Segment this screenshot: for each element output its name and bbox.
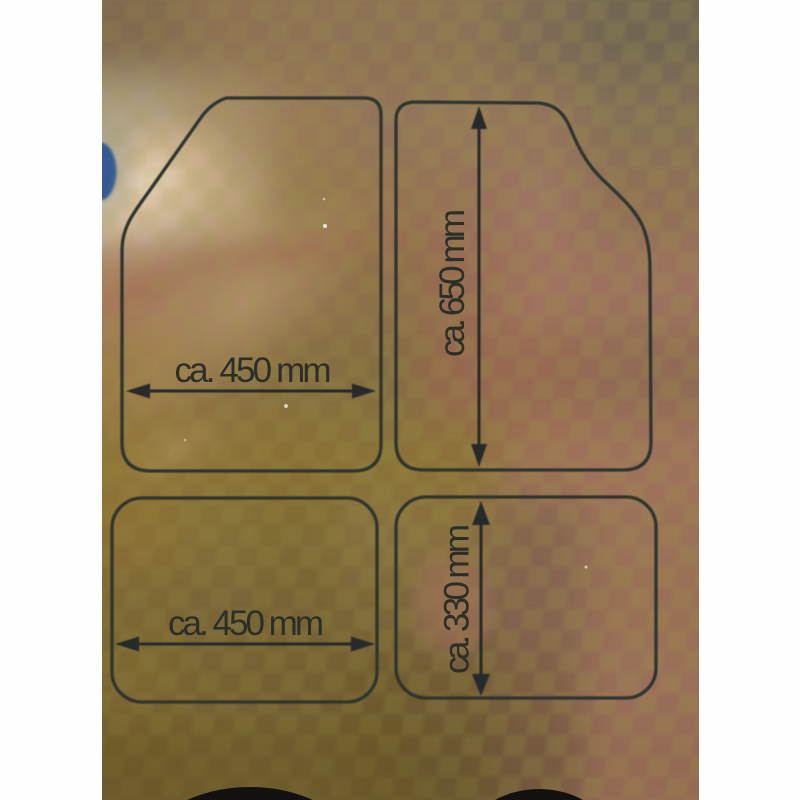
svg-text:ca. 650 mm: ca. 650 mm <box>433 209 472 357</box>
svg-text:ca. 330 mm: ca. 330 mm <box>438 524 477 674</box>
svg-text:ca. 450 mm: ca. 450 mm <box>175 351 332 390</box>
svg-text:ca. 450 mm: ca. 450 mm <box>168 604 324 643</box>
